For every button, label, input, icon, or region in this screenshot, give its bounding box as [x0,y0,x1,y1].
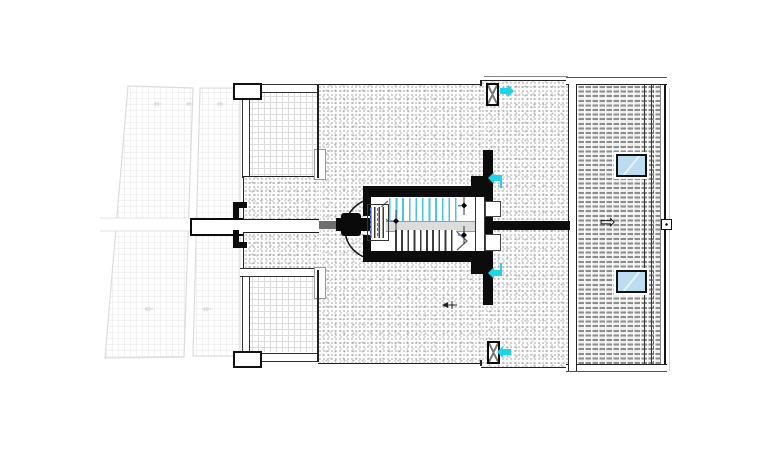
spot-elevation-marker [441,299,459,311]
brick-roof-top-wall [566,77,667,85]
lower-terrace-left-wall [242,275,250,352]
stair-wall-bottom [363,251,487,262]
dimension-text-mark [370,208,371,236]
skylight-north [616,154,647,177]
slope-arrow-icon: ↞ [144,304,153,315]
flow-arrow-icon [488,172,502,188]
stair-wall-right [475,197,485,251]
walkway-east [243,219,319,233]
upper-terrace-deck [246,90,318,178]
skylight-south [616,270,647,293]
lower-terrace-railing [255,353,318,362]
door-threshold [319,221,337,229]
slope-arrow-icon: ↞ [202,304,211,315]
core-pier-top [471,176,484,188]
duct-niche-bottom [485,234,501,251]
stair-flight-down [395,230,456,251]
core-pier-bottom [471,262,484,274]
jamb-flange-bottom [233,242,247,248]
lower-terrace-right-wall [314,267,326,299]
field-left-wall-upper [317,84,319,178]
jamb-flange-top [233,202,247,208]
brick-roof-bottom-wall [566,364,667,372]
dimension-text-mark [377,208,378,236]
roof-direction-arrow-icon: ⇨ [600,213,616,232]
roof-drain-top [486,83,499,106]
section-marker [458,226,470,244]
roof-hidden-line [653,85,655,364]
drain-flow-arrow-icon [500,85,514,97]
section-marker [390,210,402,232]
duct-niche-top [485,201,501,217]
field-left-wall-lower [317,270,319,362]
slope-arrow-icon: ↞ [185,99,194,110]
partition-wall-east [493,221,570,230]
upper-terrace-right-wall [314,149,326,180]
lower-terrace-top-wall [240,268,318,277]
parapet-step-top [480,80,482,86]
roof-seam-lines [644,85,652,364]
survey-point-marker [661,219,672,230]
upper-terrace-left-wall [242,96,250,178]
slope-arrow-icon: ↞ [216,99,225,110]
parapet-outer-line [484,76,568,77]
lower-terrace-column [233,351,262,368]
parapet-step-bottom [480,360,482,366]
upper-terrace-column [233,83,262,100]
roof-plan-canvas: ↞ ↞ ↞ ↞ ↞ ↞ ↞ [0,0,779,471]
drain-flow-arrow-icon [497,346,511,358]
slope-arrow-icon: ↞ [153,99,162,110]
lower-terrace-deck [246,275,318,352]
flow-arrow-icon [488,263,502,279]
upper-terrace-railing [255,84,318,93]
door-hardware [341,213,361,236]
section-marker [458,196,470,215]
